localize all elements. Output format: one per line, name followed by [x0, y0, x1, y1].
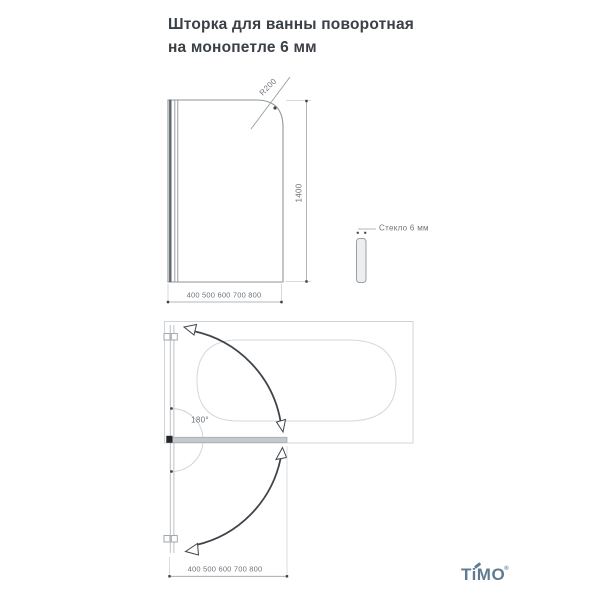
swing-arrowhead-lower-left: [186, 544, 199, 556]
rotation-angle-label: 180°: [191, 416, 209, 425]
door-end-cap-bottom-right: [171, 536, 177, 543]
product-drawing-page: Шторка для ванны поворотная на монопетле…: [0, 0, 600, 600]
glass-thickness-label: Стекло 6 мм: [379, 224, 429, 233]
glass-leader-dot-right: [364, 232, 366, 234]
closed-door-bar: [171, 437, 287, 442]
swing-arrowhead-lower-up: [276, 448, 287, 460]
rotation-arc-dot-top: [170, 407, 173, 410]
door-end-cap-top-right: [171, 334, 177, 341]
swing-arrowhead-upper-down: [277, 420, 286, 433]
front-width-dimension-label: 400 500 600 700 800: [187, 291, 262, 300]
door-end-cap-bottom-left: [164, 536, 170, 543]
glass-thickness-profile: [357, 239, 367, 283]
height-dim-tick-top: [305, 100, 307, 102]
height-dim-tick-bottom: [305, 280, 307, 282]
front-width-tick-right: [280, 301, 282, 303]
swing-arc-upper: [193, 331, 281, 421]
plan-width-tick-left: [168, 575, 170, 577]
brand-logo: TiMO®: [461, 565, 510, 585]
technical-drawing: [0, 0, 600, 600]
swing-arrowhead-upper-left: [184, 325, 197, 336]
plan-width-dimension-label: 400 500 600 700 800: [188, 565, 263, 574]
bathtub-outline: [197, 340, 396, 421]
glass-panel-outline: [168, 100, 283, 282]
plan-width-tick-right: [286, 575, 288, 577]
glass-leader-dot-left: [357, 232, 359, 234]
door-end-cap-top-left: [164, 334, 170, 341]
swing-arc-lower: [196, 459, 281, 545]
rotation-arc-dot-bottom: [170, 470, 173, 473]
height-dimension-label: 1400: [295, 184, 304, 203]
brand-logo-text: TiMO: [461, 565, 505, 584]
registered-trademark-icon: ®: [504, 566, 509, 572]
front-width-tick-left: [167, 301, 169, 303]
radius-leader-dot: [273, 106, 276, 109]
hinge-point: [166, 436, 172, 443]
